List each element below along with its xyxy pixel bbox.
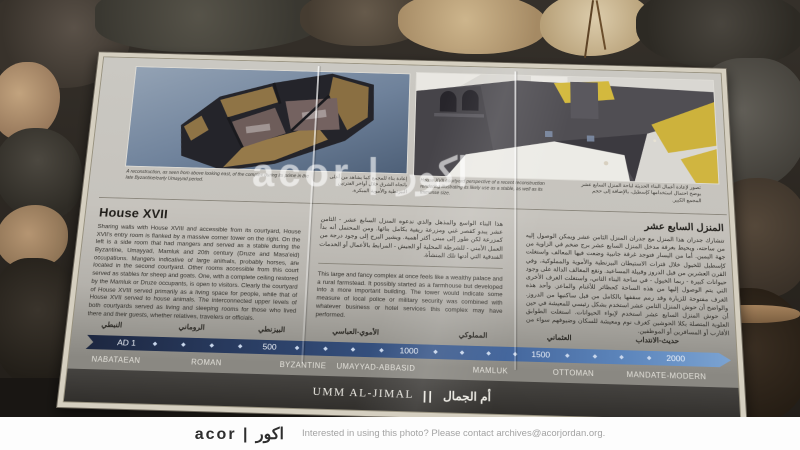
timeline-period-en: MANDATE-MODERN	[627, 370, 707, 381]
century-tick-icon: ◆	[433, 349, 438, 356]
timeline-period-ar: حديث-الانتداب	[635, 335, 679, 345]
contact-text: Interested in using this photo? Please c…	[302, 428, 605, 439]
rock	[540, 0, 650, 56]
century-tick-icon: ◆	[460, 349, 465, 356]
summary-english: This large and fancy complex at once fee…	[315, 271, 502, 324]
timeline-period-ar: الأموي-العباسي	[332, 327, 379, 337]
site-logo-divider: ||	[423, 388, 435, 403]
timeline-year: AD 1	[117, 338, 137, 348]
right-image-caption-ar: تصور لإعادة أعمال البناء الحديثة لباحة ا…	[578, 182, 701, 204]
timeline-period-en: MAMLUK	[473, 366, 508, 376]
century-tick-icon: ◆	[181, 341, 186, 348]
century-tick-icon: ◆	[565, 352, 570, 359]
acor-watermark: acor | اكور	[252, 150, 468, 196]
sign-face: A reconstruction, as seen from above loo…	[63, 56, 742, 422]
century-tick-icon: ◆	[619, 354, 624, 361]
century-tick-icon: ◆	[152, 341, 157, 348]
house-xvii-body: Sharing walls with House XVIII and acces…	[87, 223, 301, 324]
rock	[636, 0, 800, 68]
interpretive-sign-panel: A reconstruction, as seen from above loo…	[56, 51, 748, 428]
timeline-period-en: ROMAN	[191, 358, 222, 367]
century-tick-icon: ◆	[647, 355, 652, 362]
century-tick-icon: ◆	[295, 345, 300, 352]
timeline-period-en: UMAYYAD-ABBASID	[336, 362, 415, 373]
timeline-bar: AD 1 500 1000 1500 2000 ◆ ◆ ◆ ◆ ◆ ◆ ◆ ◆ …	[86, 335, 732, 368]
summary-divider-line	[318, 263, 502, 269]
photo-of-interpretive-sign: A reconstruction, as seen from above loo…	[0, 0, 800, 450]
century-tick-icon: ◆	[323, 345, 328, 352]
summary-column: هذا البناء الواسع والمذهل والذي ندعوه ال…	[315, 215, 503, 324]
century-tick-icon: ◆	[238, 343, 243, 350]
photo-footer-bar: acor | اكور Interested in using this pho…	[0, 417, 800, 450]
century-tick-icon: ◆	[593, 353, 598, 360]
timeline-year: 1500	[531, 349, 550, 359]
timeline-period-en: OTTOMAN	[553, 368, 594, 378]
site-name-arabic: أم الجمال	[443, 389, 491, 404]
timeline-period-ar: الروماني	[178, 322, 205, 331]
timeline-period-ar: النبطي	[101, 320, 123, 329]
timeline-year: 500	[262, 342, 277, 352]
house-xvii-arabic-column: المنزل السابع عشر تتشارك جدران هذا المنز…	[526, 218, 730, 339]
house-xvii-heading-ar: المنزل السابع عشر	[526, 218, 724, 234]
rock	[95, 0, 325, 52]
rock	[398, 0, 548, 54]
house-xvii-heading: House XVII	[98, 206, 302, 225]
site-name-english: UMM AL-JIMAL	[312, 386, 414, 401]
house-xvii-column: House XVII Sharing walls with House XVII…	[87, 206, 302, 324]
timeline-period-ar: البيزنطي	[258, 325, 285, 334]
glass-panel-seam	[514, 71, 516, 370]
century-tick-icon: ◆	[209, 342, 214, 349]
summary-arabic: هذا البناء الواسع والمذهل والذي ندعوه ال…	[319, 215, 503, 261]
century-tick-icon: ◆	[486, 350, 491, 357]
acor-logo: acor | اكور	[195, 424, 284, 444]
timeline-period-en: NABATAEAN	[91, 355, 141, 365]
timeline-period-ar: العثماني	[547, 333, 572, 342]
timeline-period-ar: المملوكي	[459, 330, 488, 339]
house-xvii-body-ar: تتشارك جدران هذا المنزل مع جدران المنزل …	[526, 232, 730, 339]
century-tick-icon: ◆	[379, 347, 384, 354]
timeline-year: 1000	[399, 346, 418, 356]
century-tick-icon: ◆	[351, 346, 356, 353]
timeline-year: 2000	[666, 353, 685, 363]
